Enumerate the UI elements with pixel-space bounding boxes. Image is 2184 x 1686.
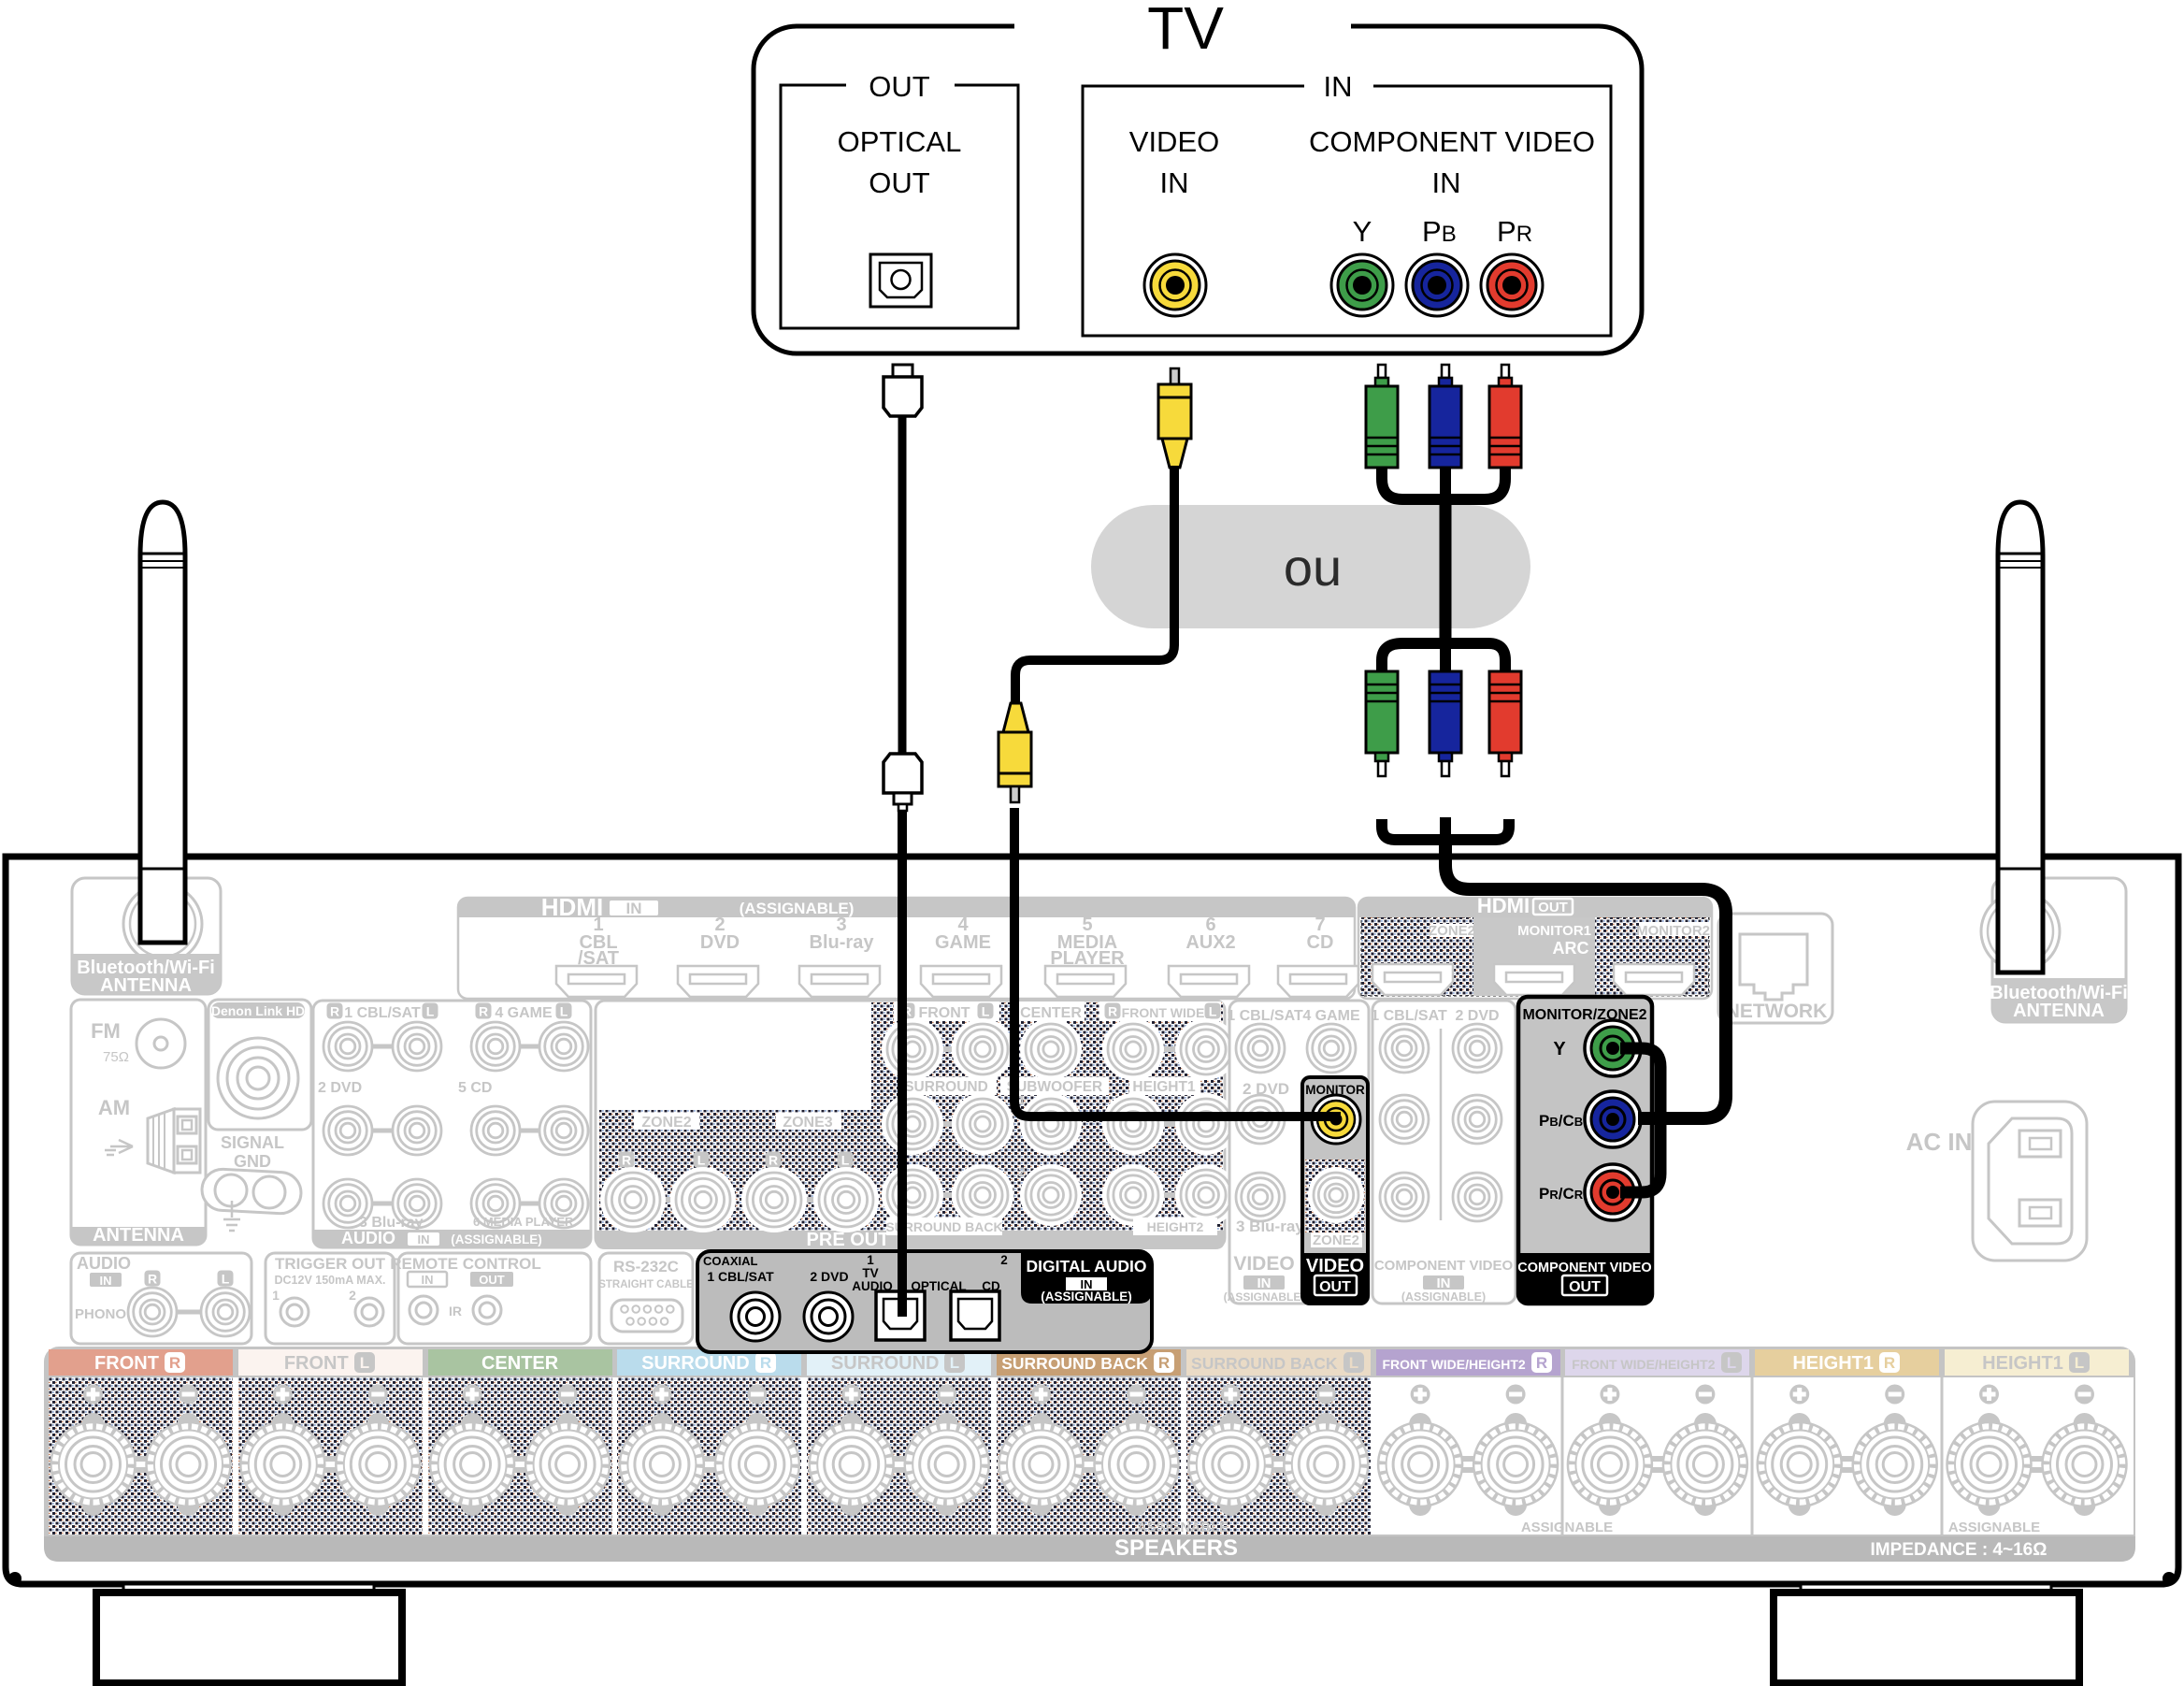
svg-text:2: 2 bbox=[1018, 1164, 1026, 1179]
svg-text:R: R bbox=[760, 1354, 771, 1372]
svg-text:L: L bbox=[982, 1004, 990, 1019]
svg-text:COMPONENT VIDEO: COMPONENT VIDEO bbox=[1374, 1258, 1514, 1274]
svg-text:IR: IR bbox=[449, 1304, 462, 1319]
svg-text:PR/CR: PR/CR bbox=[1539, 1185, 1584, 1203]
svg-text:3 Blu-ray: 3 Blu-ray bbox=[359, 1215, 424, 1231]
svg-text:AM: AM bbox=[98, 1096, 130, 1119]
svg-text:SURROUND: SURROUND bbox=[831, 1353, 940, 1374]
svg-text:R: R bbox=[769, 1153, 778, 1168]
svg-text:OUT: OUT bbox=[869, 70, 930, 103]
svg-text:AUDIO: AUDIO bbox=[77, 1254, 131, 1273]
svg-text:GAME: GAME bbox=[935, 932, 991, 953]
svg-text:L: L bbox=[1349, 1354, 1358, 1372]
svg-text:L: L bbox=[1209, 1004, 1217, 1019]
svg-text:FRONT WIDE/HEIGHT2: FRONT WIDE/HEIGHT2 bbox=[1572, 1357, 1715, 1372]
svg-text:ASSIGNABLE: ASSIGNABLE bbox=[1948, 1520, 2040, 1535]
svg-text:/SAT: /SAT bbox=[578, 948, 619, 969]
svg-text:4 GAME: 4 GAME bbox=[495, 1005, 553, 1021]
svg-text:OUT: OUT bbox=[1538, 900, 1568, 915]
svg-text:3 Blu-ray: 3 Blu-ray bbox=[1236, 1218, 1304, 1235]
svg-text:DC12V 150mA MAX.: DC12V 150mA MAX. bbox=[274, 1274, 385, 1287]
svg-text:ANTENNA: ANTENNA bbox=[2013, 1001, 2105, 1021]
svg-text:ARC: ARC bbox=[1553, 939, 1589, 958]
svg-text:OUT: OUT bbox=[479, 1273, 505, 1287]
svg-text:ou: ou bbox=[1284, 538, 1342, 597]
svg-text:ASSIGNABLE: ASSIGNABLE bbox=[1521, 1520, 1613, 1535]
svg-text:6 MEDIA PLAYER: 6 MEDIA PLAYER bbox=[473, 1215, 574, 1229]
svg-text:VIDEO: VIDEO bbox=[1129, 125, 1219, 158]
svg-text:HEIGHT1: HEIGHT1 bbox=[1982, 1353, 2063, 1374]
svg-text:HEIGHT1: HEIGHT1 bbox=[1792, 1353, 1874, 1374]
svg-text:2: 2 bbox=[349, 1288, 356, 1303]
svg-text:L: L bbox=[426, 1004, 435, 1019]
svg-text:PHONO: PHONO bbox=[75, 1306, 126, 1322]
svg-text:TV: TV bbox=[1147, 0, 1224, 62]
svg-text:SPEAKERS: SPEAKERS bbox=[1114, 1535, 1238, 1561]
svg-text:NETWORK: NETWORK bbox=[1726, 1001, 1828, 1022]
svg-text:2: 2 bbox=[1000, 1253, 1008, 1267]
svg-text:ZONE3: ZONE3 bbox=[783, 1115, 832, 1131]
svg-text:1 CBL/SAT: 1 CBL/SAT bbox=[344, 1005, 421, 1021]
svg-text:1 CBL/SAT: 1 CBL/SAT bbox=[1227, 1008, 1303, 1024]
svg-text:FM: FM bbox=[91, 1019, 121, 1043]
svg-text:ASSIGNABLE: ASSIGNABLE bbox=[1137, 1520, 1228, 1535]
svg-text:COMPONENT VIDEO: COMPONENT VIDEO bbox=[1517, 1261, 1651, 1275]
svg-text:(ASSIGNABLE): (ASSIGNABLE) bbox=[1401, 1290, 1486, 1304]
svg-text:1: 1 bbox=[272, 1288, 280, 1303]
svg-text:L: L bbox=[1727, 1354, 1736, 1372]
svg-text:OPTICAL: OPTICAL bbox=[838, 125, 962, 158]
svg-text:IN: IN bbox=[100, 1274, 112, 1288]
svg-text:IN: IN bbox=[626, 900, 642, 917]
svg-text:HEIGHT1: HEIGHT1 bbox=[1132, 1079, 1196, 1095]
svg-text:Denon Link HD: Denon Link HD bbox=[211, 1003, 305, 1018]
svg-text:L: L bbox=[222, 1272, 230, 1287]
svg-text:(ASSIGNABLE): (ASSIGNABLE) bbox=[1041, 1290, 1132, 1304]
svg-text:FRONT: FRONT bbox=[918, 1005, 970, 1021]
svg-text:SURROUND: SURROUND bbox=[904, 1079, 988, 1095]
svg-text:HDMI: HDMI bbox=[1477, 894, 1530, 917]
svg-text:L: L bbox=[560, 1004, 568, 1019]
svg-text:ANTENNA: ANTENNA bbox=[100, 975, 192, 996]
svg-text:RS-232C: RS-232C bbox=[613, 1258, 679, 1275]
svg-text:MONITOR1: MONITOR1 bbox=[1517, 923, 1591, 939]
svg-text:VIDEO: VIDEO bbox=[1233, 1253, 1294, 1275]
svg-text:CD: CD bbox=[1307, 932, 1334, 953]
svg-text:IMPEDANCE : 4~16Ω: IMPEDANCE : 4~16Ω bbox=[1871, 1540, 2047, 1560]
svg-text:FRONT WIDE: FRONT WIDE bbox=[1122, 1005, 1205, 1020]
svg-text:1 CBL/SAT: 1 CBL/SAT bbox=[707, 1269, 774, 1284]
svg-text:ZONE2: ZONE2 bbox=[1429, 923, 1475, 939]
svg-text:L: L bbox=[2075, 1354, 2084, 1372]
svg-text:2 DVD: 2 DVD bbox=[318, 1080, 362, 1096]
svg-text:VIDEO: VIDEO bbox=[1306, 1256, 1364, 1276]
svg-text:OUT: OUT bbox=[869, 166, 930, 199]
svg-text:L: L bbox=[360, 1354, 369, 1372]
svg-text:AUX2: AUX2 bbox=[1185, 932, 1235, 953]
svg-text:R: R bbox=[148, 1272, 157, 1287]
svg-text:DVD: DVD bbox=[700, 932, 740, 953]
svg-text:2 DVD: 2 DVD bbox=[810, 1269, 848, 1284]
svg-text:IN: IN bbox=[1437, 1275, 1451, 1291]
svg-text:R: R bbox=[1108, 1004, 1117, 1019]
svg-text:R: R bbox=[622, 1153, 631, 1168]
svg-text:75Ω: 75Ω bbox=[103, 1049, 129, 1065]
svg-text:1 CBL/SAT: 1 CBL/SAT bbox=[1371, 1008, 1447, 1024]
svg-text:FRONT: FRONT bbox=[94, 1353, 159, 1374]
svg-text:1: 1 bbox=[867, 1253, 874, 1267]
svg-text:SIGNAL: SIGNAL bbox=[221, 1133, 284, 1152]
svg-text:REMOTE CONTROL: REMOTE CONTROL bbox=[390, 1255, 541, 1273]
svg-text:COMPONENT VIDEO: COMPONENT VIDEO bbox=[1309, 125, 1595, 158]
svg-text:DIGITAL AUDIO: DIGITAL AUDIO bbox=[1027, 1257, 1147, 1275]
svg-text:SURROUND: SURROUND bbox=[641, 1353, 750, 1374]
svg-text:IN: IN bbox=[418, 1232, 430, 1246]
svg-text:SURROUND BACK: SURROUND BACK bbox=[1001, 1354, 1148, 1373]
svg-text:4 GAME: 4 GAME bbox=[1302, 1008, 1360, 1024]
svg-text:SURROUND BACK: SURROUND BACK bbox=[1191, 1354, 1338, 1373]
svg-text:TV: TV bbox=[862, 1266, 878, 1280]
svg-text:(ASSIGNABLE): (ASSIGNABLE) bbox=[451, 1232, 542, 1246]
svg-text:R: R bbox=[1884, 1354, 1895, 1372]
svg-text:OUT: OUT bbox=[1319, 1279, 1351, 1295]
svg-text:CENTER: CENTER bbox=[481, 1353, 559, 1374]
svg-text:MONITOR2: MONITOR2 bbox=[1636, 923, 1710, 939]
svg-text:IN: IN bbox=[422, 1273, 434, 1287]
svg-text:OUT: OUT bbox=[1569, 1279, 1601, 1295]
svg-text:ANTENNA: ANTENNA bbox=[93, 1225, 184, 1246]
svg-text:L: L bbox=[950, 1354, 959, 1372]
svg-text:R: R bbox=[479, 1004, 488, 1019]
svg-text:MONITOR/ZONE2: MONITOR/ZONE2 bbox=[1522, 1007, 1646, 1023]
svg-text:FRONT WIDE/HEIGHT2: FRONT WIDE/HEIGHT2 bbox=[1382, 1357, 1525, 1372]
svg-text:PLAYER: PLAYER bbox=[1050, 948, 1125, 969]
svg-text:PB/CB: PB/CB bbox=[1539, 1112, 1583, 1130]
svg-text:Blu-ray: Blu-ray bbox=[810, 932, 875, 953]
svg-text:5 CD: 5 CD bbox=[458, 1080, 492, 1096]
svg-text:FRONT: FRONT bbox=[284, 1353, 349, 1374]
svg-text:HEIGHT2: HEIGHT2 bbox=[1147, 1219, 1204, 1234]
svg-text:R: R bbox=[1536, 1354, 1547, 1372]
svg-text:IN: IN bbox=[1160, 166, 1189, 199]
svg-text:IN: IN bbox=[1257, 1275, 1272, 1291]
svg-text:PRE OUT: PRE OUT bbox=[807, 1230, 890, 1250]
svg-text:AC IN: AC IN bbox=[1906, 1128, 1973, 1156]
svg-text:2 DVD: 2 DVD bbox=[1455, 1008, 1499, 1024]
svg-text:Y: Y bbox=[1553, 1039, 1566, 1059]
svg-text:IN: IN bbox=[1432, 166, 1461, 199]
svg-text:GND: GND bbox=[234, 1152, 271, 1171]
svg-text:L: L bbox=[697, 1153, 706, 1168]
svg-text:AUDIO: AUDIO bbox=[341, 1229, 395, 1247]
svg-text:(ASSIGNABLE): (ASSIGNABLE) bbox=[1224, 1290, 1305, 1304]
svg-text:ZONE2: ZONE2 bbox=[641, 1115, 691, 1131]
svg-text:STRAIGHT CABLE: STRAIGHT CABLE bbox=[598, 1279, 694, 1290]
svg-text:TRIGGER OUT: TRIGGER OUT bbox=[275, 1255, 386, 1273]
svg-text:1: 1 bbox=[1018, 1092, 1026, 1107]
svg-text:Y: Y bbox=[1353, 215, 1372, 248]
svg-text:COAXIAL: COAXIAL bbox=[703, 1254, 758, 1268]
svg-text:IN: IN bbox=[1324, 70, 1353, 103]
svg-text:R: R bbox=[330, 1004, 339, 1019]
svg-text:R: R bbox=[169, 1354, 180, 1372]
svg-text:ZONE2: ZONE2 bbox=[1313, 1232, 1359, 1248]
svg-text:L: L bbox=[841, 1153, 850, 1168]
svg-text:R: R bbox=[1158, 1354, 1170, 1372]
